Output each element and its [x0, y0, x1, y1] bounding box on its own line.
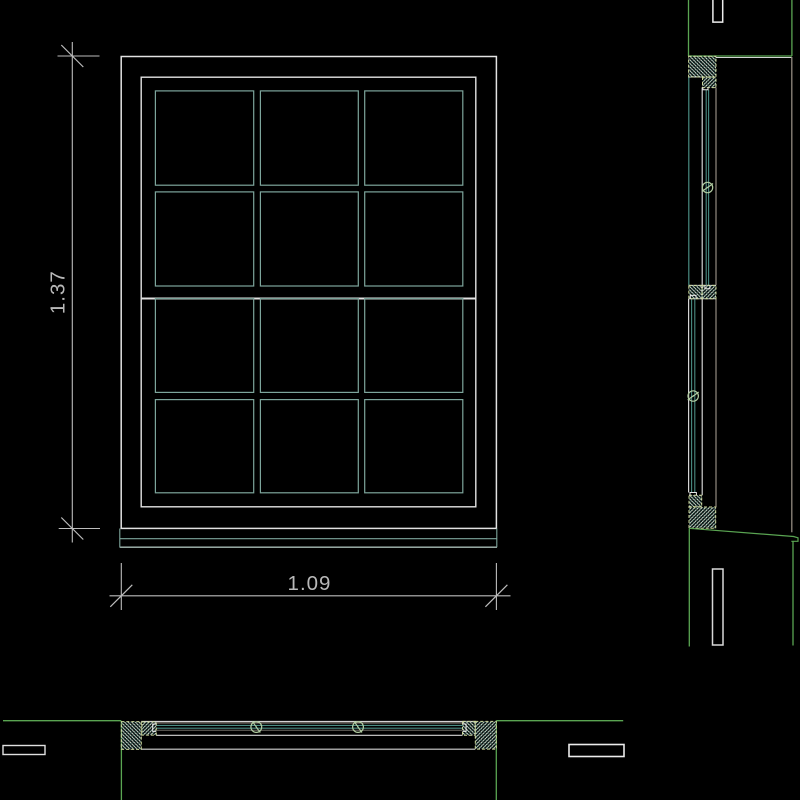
- svg-text:1.37: 1.37: [46, 270, 69, 314]
- svg-text:1.09: 1.09: [288, 572, 332, 595]
